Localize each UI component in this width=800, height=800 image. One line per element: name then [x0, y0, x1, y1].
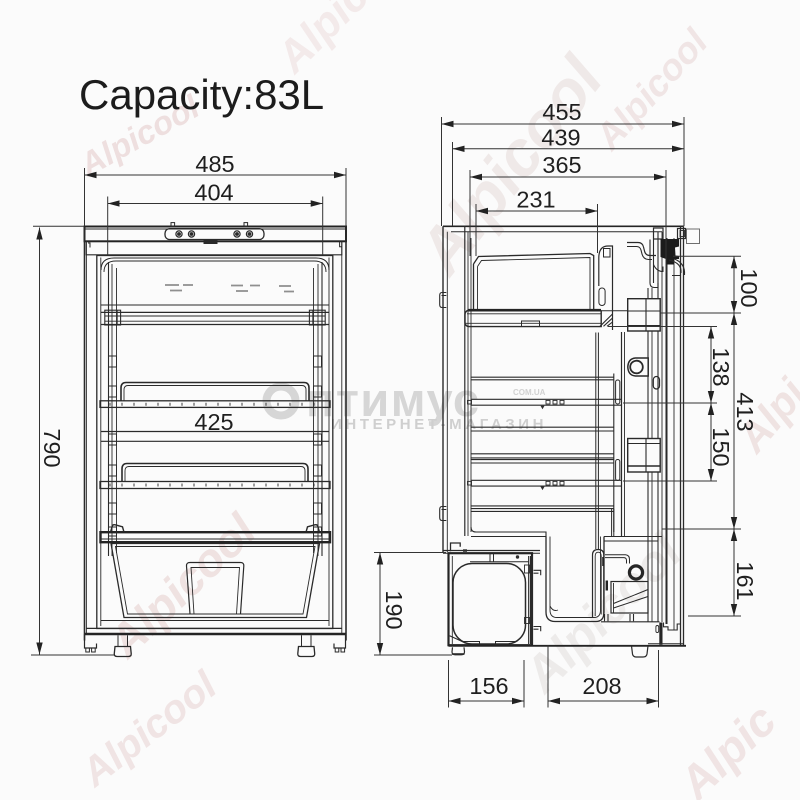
svg-text:439: 439 [541, 125, 580, 151]
svg-text:100: 100 [736, 268, 762, 307]
svg-text:231: 231 [516, 187, 555, 213]
svg-text:790: 790 [39, 428, 65, 467]
svg-text:404: 404 [194, 180, 233, 206]
svg-text:Alpic: Alpic [668, 694, 786, 800]
svg-text:190: 190 [381, 590, 407, 629]
svg-text:COM.UA: COM.UA [513, 388, 546, 397]
svg-text:156: 156 [469, 673, 508, 699]
svg-text:Alpicool: Alpicool [403, 42, 617, 288]
svg-text:161: 161 [732, 561, 758, 600]
svg-text:413: 413 [732, 392, 758, 431]
svg-text:455: 455 [542, 99, 581, 125]
svg-text:485: 485 [195, 151, 234, 177]
svg-text:365: 365 [542, 152, 581, 178]
svg-text:150: 150 [708, 427, 734, 466]
svg-text:Capacity:83L: Capacity:83L [79, 71, 324, 118]
svg-text:208: 208 [582, 673, 621, 699]
svg-text:Alpicool: Alpicool [73, 663, 226, 796]
svg-text:138: 138 [708, 347, 734, 386]
svg-text:425: 425 [194, 409, 233, 435]
